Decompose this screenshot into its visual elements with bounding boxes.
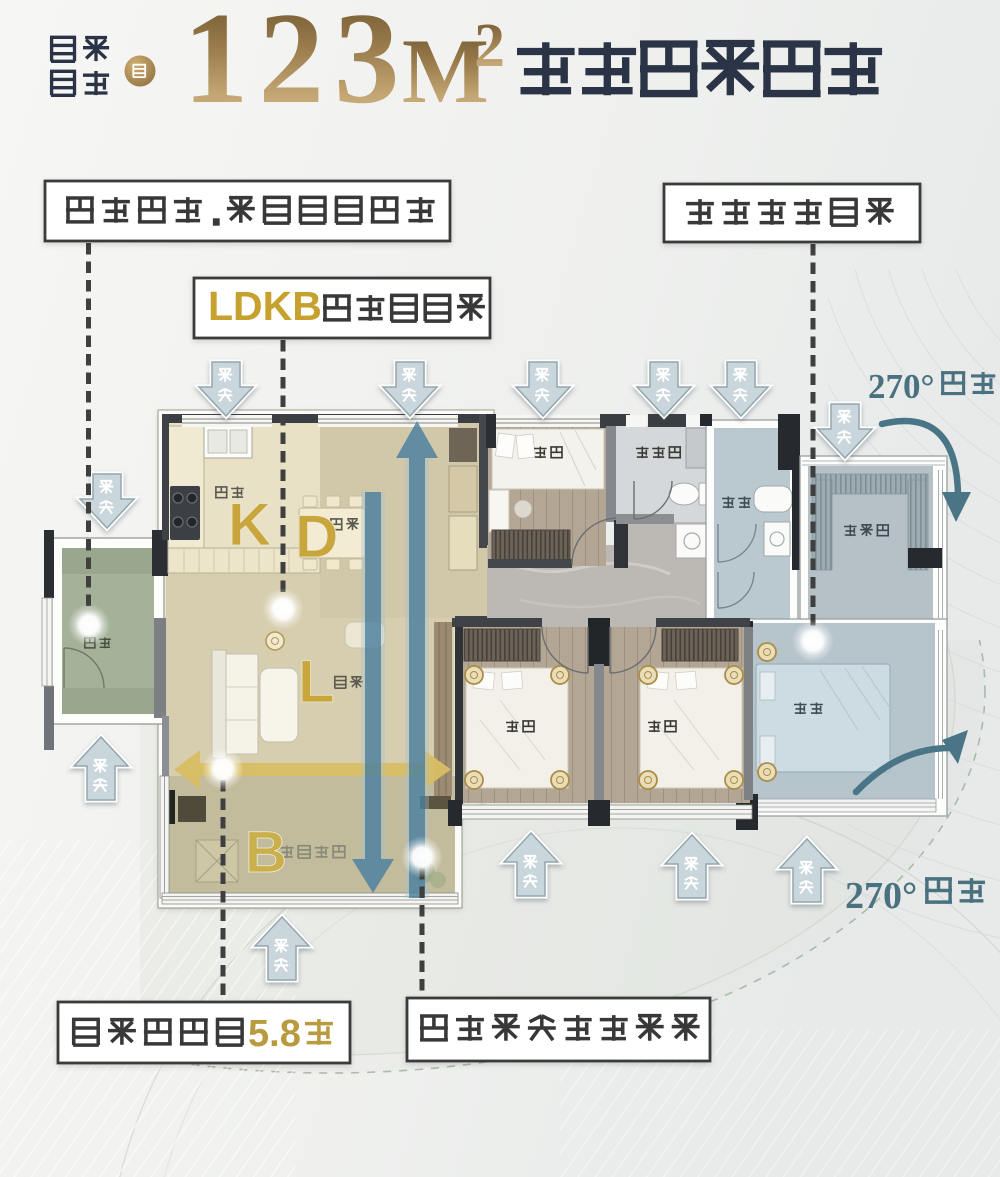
svg-text:2: 2 [474,12,505,80]
svg-text:270°: 270° [845,875,917,917]
svg-text:270°: 270° [868,367,935,406]
svg-text:D: D [295,503,338,570]
svg-text:123: 123 [183,0,410,131]
svg-text:L: L [298,648,335,715]
svg-text:K: K [228,491,271,558]
svg-text:LDKB: LDKB [208,283,322,329]
svg-text:5.8: 5.8 [248,1013,301,1055]
svg-text:B: B [245,820,287,885]
